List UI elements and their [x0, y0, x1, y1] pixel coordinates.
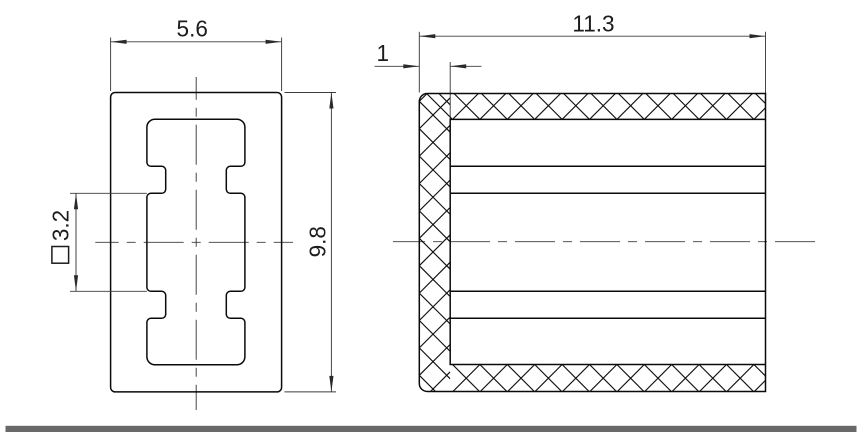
svg-text:1: 1: [377, 39, 390, 66]
svg-text:3.2: 3.2: [47, 210, 74, 241]
svg-text:9.8: 9.8: [304, 226, 331, 257]
svg-text:11.3: 11.3: [572, 10, 614, 37]
svg-text:5.6: 5.6: [177, 15, 208, 42]
